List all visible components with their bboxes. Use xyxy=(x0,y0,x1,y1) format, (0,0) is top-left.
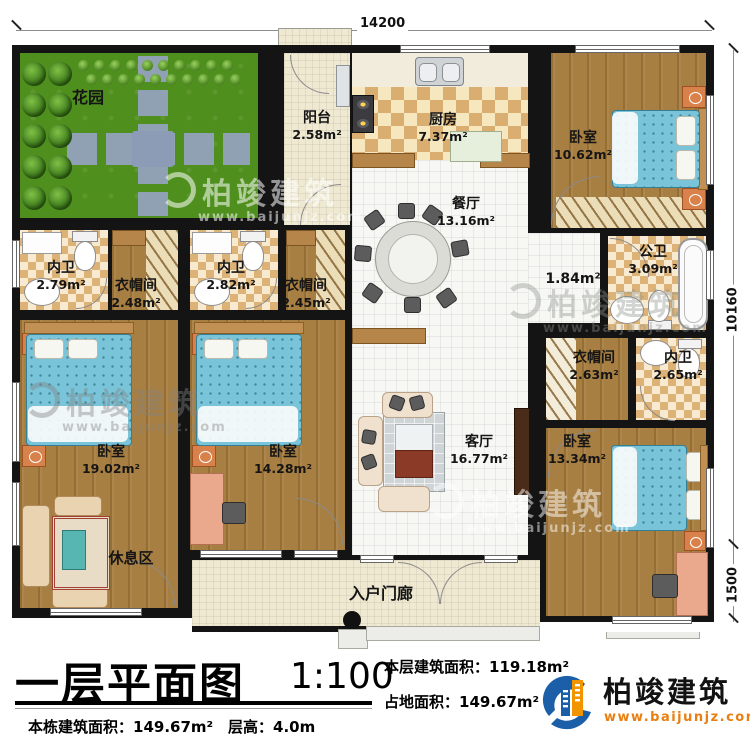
tree xyxy=(22,93,46,117)
dining-chair xyxy=(354,245,372,262)
window xyxy=(360,555,394,563)
porch-step xyxy=(338,629,368,649)
nightstand xyxy=(684,531,706,551)
company-logo-icon xyxy=(541,672,597,730)
bush xyxy=(158,60,169,71)
plan-scale: 1:100 xyxy=(290,656,394,697)
tv-cabinet xyxy=(514,408,530,495)
label-closet-3: 衣帽间2.63m² xyxy=(569,350,618,382)
window xyxy=(706,250,714,300)
label-public-bath: 公卫3.09m² xyxy=(628,244,677,276)
label-dining: 餐厅13.16m² xyxy=(437,196,495,228)
bed-blanket xyxy=(612,112,638,184)
label-bedroom-bottom-right: 卧室13.34m² xyxy=(548,434,606,466)
label-balcony: 阳台2.58m² xyxy=(292,110,341,142)
label-living: 客厅16.77m² xyxy=(450,434,508,466)
label-bath-3: 内卫2.65m² xyxy=(653,350,702,382)
bush xyxy=(230,74,241,85)
window xyxy=(484,555,518,563)
lounge-sofa-top xyxy=(54,496,102,516)
window xyxy=(12,482,20,546)
tree xyxy=(22,124,46,148)
bathtub xyxy=(678,238,708,330)
company-logo: 柏竣建筑 www.baijunjz.com xyxy=(541,670,741,732)
label-bath-1: 内卫2.79m² xyxy=(36,260,85,292)
dining-chair xyxy=(450,239,470,258)
nightstand xyxy=(682,86,706,108)
nightstand xyxy=(192,445,216,467)
window xyxy=(706,95,714,185)
kitchen-threshold xyxy=(352,153,415,168)
porch-step-strip xyxy=(366,626,540,641)
label-lounge: 休息区 xyxy=(108,549,153,567)
bed-blanket xyxy=(613,447,637,527)
ground xyxy=(12,618,192,632)
dimension-line-right xyxy=(733,50,734,622)
desk-chair xyxy=(652,574,678,598)
bed-blanket xyxy=(28,406,128,442)
pillow xyxy=(204,339,234,359)
desk xyxy=(676,552,708,616)
tree xyxy=(48,155,72,179)
label-kitchen: 厨房7.37m² xyxy=(418,112,467,144)
bed-headboard xyxy=(194,322,304,334)
bush xyxy=(150,74,161,85)
bed-headboard xyxy=(24,322,134,334)
dimension-top-value: 14200 xyxy=(357,16,408,31)
coffee-table xyxy=(62,530,86,570)
sofa-chaise xyxy=(378,486,430,512)
bush xyxy=(118,74,129,85)
label-hallway: 1.84m² xyxy=(545,271,600,288)
dimension-right-lower-value: 1500 xyxy=(726,564,741,606)
nightstand xyxy=(22,445,46,467)
tree xyxy=(48,93,72,117)
window xyxy=(12,382,20,462)
label-bedroom-left: 卧室19.02m² xyxy=(82,444,140,476)
dimension-tick xyxy=(704,20,715,31)
bush xyxy=(126,60,137,71)
bush xyxy=(94,60,105,71)
window xyxy=(200,550,282,558)
tree xyxy=(22,155,46,179)
label-bedroom-mid: 卧室14.28m² xyxy=(254,444,312,476)
washer xyxy=(336,65,350,107)
sofa-left xyxy=(358,416,383,486)
floor-plan-page: 14200 10160 1500 xyxy=(0,0,750,744)
pillow xyxy=(676,116,696,146)
desk-chair xyxy=(222,502,246,524)
lounge-sofa-left xyxy=(22,505,50,587)
tree xyxy=(22,186,46,210)
building-area-text: 本栋建筑面积：149.67m² xyxy=(28,716,213,737)
dining-table-top xyxy=(388,234,438,284)
company-logo-site: www.baijunjz.com xyxy=(604,710,750,726)
pillow xyxy=(238,339,268,359)
tree xyxy=(48,186,72,210)
porch-column xyxy=(343,611,361,629)
closet-cabinet xyxy=(112,230,146,246)
sideboard xyxy=(352,328,426,344)
garden-path-center xyxy=(132,131,174,167)
tree xyxy=(48,124,72,148)
window xyxy=(706,468,714,548)
toilet xyxy=(648,290,670,322)
bush xyxy=(222,60,233,71)
window xyxy=(294,550,338,558)
dimension-tick xyxy=(11,20,22,31)
floor-height-text: 层高：4.0m xyxy=(228,716,315,737)
nightstand xyxy=(682,188,706,210)
bush xyxy=(166,74,177,85)
carpet-inlay2 xyxy=(395,450,433,478)
label-entry-porch: 入户门廊 xyxy=(349,584,413,603)
cushion xyxy=(361,429,377,445)
tree xyxy=(22,62,46,86)
vanity xyxy=(22,232,62,254)
window xyxy=(50,608,142,616)
bush xyxy=(110,60,121,71)
vanity xyxy=(192,232,232,254)
window xyxy=(575,45,680,53)
bed-blanket xyxy=(198,406,298,442)
bush xyxy=(206,60,217,71)
bush xyxy=(174,60,185,71)
window xyxy=(612,616,692,624)
bush xyxy=(190,60,201,71)
tree xyxy=(48,62,72,86)
pillow xyxy=(34,339,64,359)
label-closet-1: 衣帽间2.48m² xyxy=(111,278,160,310)
title-underline-thick xyxy=(15,701,372,705)
bush xyxy=(134,74,145,85)
pillow xyxy=(68,339,98,359)
dining-chair xyxy=(398,203,415,219)
company-logo-name: 柏竣建筑 xyxy=(603,678,731,707)
bush xyxy=(198,74,209,85)
label-closet-2: 衣帽间2.45m² xyxy=(281,278,330,310)
label-bedroom-top-right: 卧室10.62m² xyxy=(554,130,612,162)
label-bath-2: 内卫2.82m² xyxy=(206,260,255,292)
bush xyxy=(214,74,225,85)
desk xyxy=(190,473,224,545)
label-garden: 花园 xyxy=(72,88,104,107)
bush xyxy=(86,74,97,85)
title-underline-thin xyxy=(15,708,372,709)
dining-chair xyxy=(404,297,421,313)
closet-cabinet xyxy=(286,230,316,246)
carpet-inlay xyxy=(395,424,433,452)
dimension-right-main-value: 10160 xyxy=(726,284,741,335)
bush xyxy=(78,60,89,71)
window xyxy=(400,45,490,53)
bush xyxy=(102,74,113,85)
pillow xyxy=(676,150,696,180)
wash-basin xyxy=(610,296,644,324)
bush xyxy=(142,60,153,71)
stove xyxy=(352,95,374,133)
kitchen-sink xyxy=(415,57,464,86)
bush xyxy=(182,74,193,85)
window xyxy=(12,240,20,288)
land-area-text: 占地面积：149.67m² xyxy=(384,691,539,712)
